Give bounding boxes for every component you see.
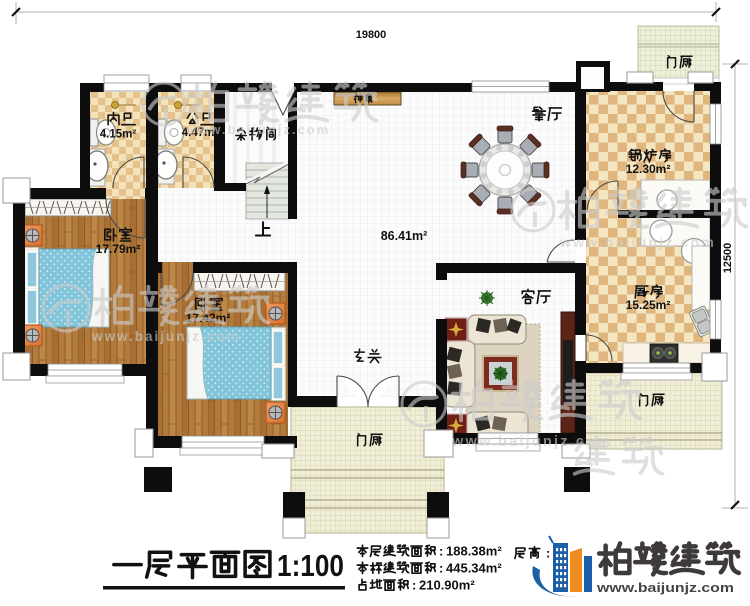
svg-text:445.34m²: 445.34m² — [446, 561, 502, 576]
svg-text:17.79m²: 17.79m² — [96, 242, 141, 256]
svg-text:www.baijunjz.com: www.baijunjz.com — [91, 329, 241, 344]
svg-text::: : — [439, 544, 443, 559]
svg-text:www.baijunjz.com: www.baijunjz.com — [596, 580, 734, 595]
svg-text::: : — [412, 578, 416, 593]
svg-text:210.90m²: 210.90m² — [419, 578, 475, 593]
svg-text:15.25m²: 15.25m² — [626, 298, 671, 312]
svg-text:www.baijunjz.com: www.baijunjz.com — [185, 122, 330, 137]
svg-text:1:100: 1:100 — [277, 548, 344, 583]
svg-text:86.41m²: 86.41m² — [381, 229, 428, 243]
svg-text::: : — [546, 546, 550, 561]
svg-text:12500: 12500 — [722, 243, 734, 274]
svg-text:12.30m²: 12.30m² — [626, 162, 671, 176]
svg-text:19800: 19800 — [356, 29, 387, 41]
svg-text:4.15m²: 4.15m² — [100, 129, 137, 141]
svg-text:188.38m²: 188.38m² — [446, 544, 502, 559]
svg-text:www.baijunjz.com: www.baijunjz.com — [559, 234, 716, 250]
svg-text::: : — [439, 561, 443, 576]
